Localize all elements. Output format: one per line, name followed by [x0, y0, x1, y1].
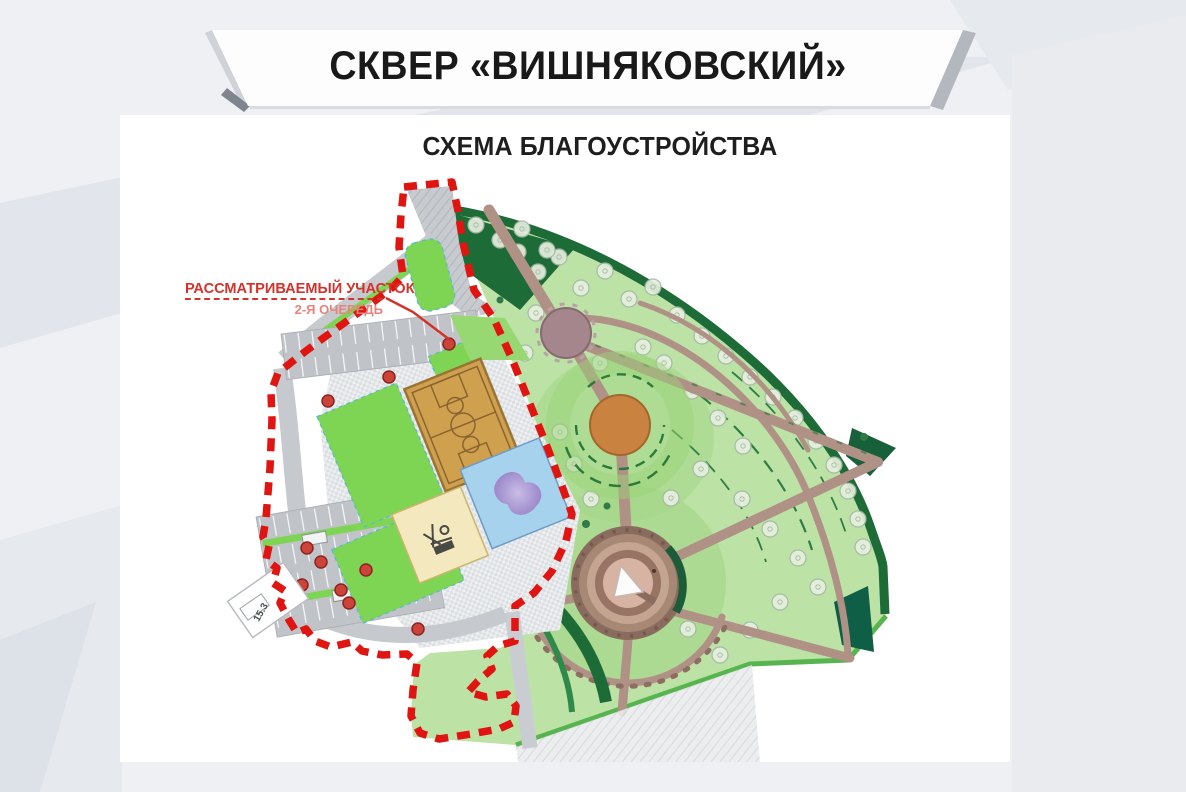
phase2-callout: РАССМАТРИВАЕМЫЙ УЧАСТОК 2-Я ОЧЕРЕДЬ	[185, 280, 389, 317]
page-title: СКВЕР «ВИШНЯКОВСКИЙ»	[259, 44, 917, 89]
park-map: 15.3	[120, 115, 1010, 762]
callout-line2: 2-Я ОЧЕРЕДЬ	[185, 302, 389, 317]
callout-line1: РАССМАТРИВАЕМЫЙ УЧАСТОК	[185, 280, 383, 300]
main-alley-south	[622, 640, 628, 712]
central-plaza	[571, 526, 685, 640]
presentation-slide: { "slide": { "title": "СКВЕР «ВИШНЯКОВСК…	[0, 0, 1186, 792]
